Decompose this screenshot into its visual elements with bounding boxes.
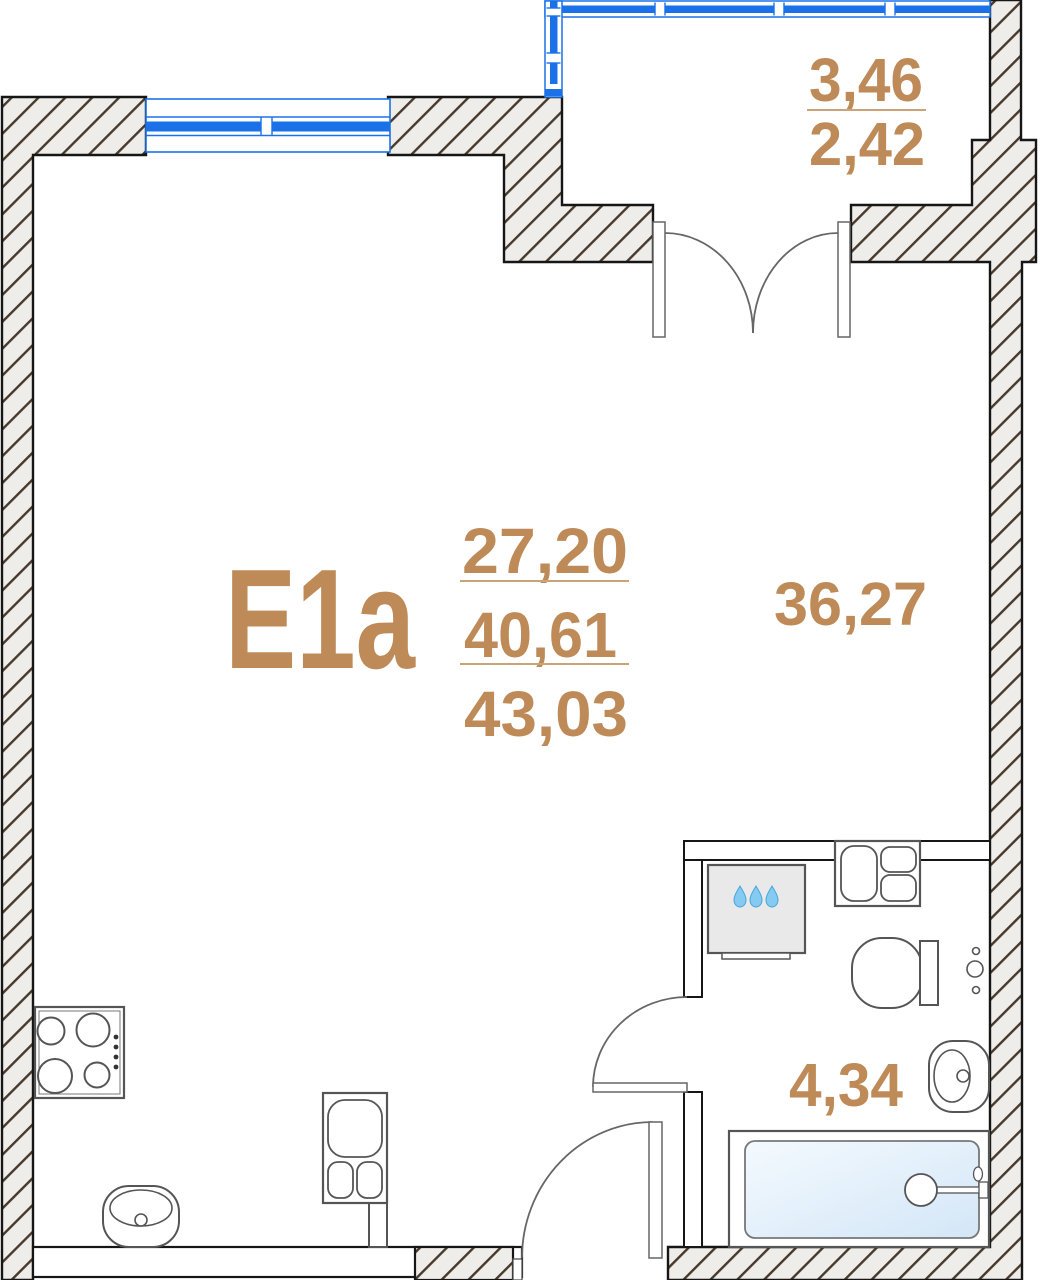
bathroom-wall-west-lower xyxy=(684,1092,702,1247)
sink-bowl-small xyxy=(357,1162,382,1198)
door-jamb-left xyxy=(653,222,665,337)
door-leaf xyxy=(649,1122,662,1258)
bathroom-wall-west-upper xyxy=(684,860,702,997)
knob xyxy=(114,1055,119,1060)
bathroom-area: 4,34 xyxy=(789,1051,903,1119)
door-swing-arc-right xyxy=(753,233,838,333)
main-window xyxy=(146,99,390,152)
floor-plan-canvas: E1a 27,20 40,61 43,03 36,27 3,46 2,42 4,… xyxy=(0,0,1041,1280)
burner xyxy=(85,1063,110,1088)
balcony-french-door xyxy=(653,222,850,337)
main-room-area: 36,27 xyxy=(774,570,927,638)
wash-basin xyxy=(929,1041,989,1112)
door-jamb-right xyxy=(838,222,850,337)
area-living: 27,20 xyxy=(462,515,628,587)
balcony-window-left xyxy=(545,1,562,97)
knob xyxy=(114,1045,119,1050)
water-drop-icon xyxy=(734,886,778,907)
balcony-area-upper: 3,46 xyxy=(809,46,923,114)
burner xyxy=(38,1059,72,1093)
vessel-sink xyxy=(103,1186,179,1247)
knob xyxy=(114,1035,119,1040)
bathtub xyxy=(729,1131,989,1247)
burner xyxy=(77,1014,110,1047)
door-leaf xyxy=(593,1083,687,1092)
floor-plan: E1a 27,20 40,61 43,03 36,27 3,46 2,42 4,… xyxy=(0,0,1041,1280)
bottom-wall xyxy=(33,1247,522,1280)
stove xyxy=(35,1007,124,1098)
wall-top-step xyxy=(388,97,653,262)
door-swing-arc xyxy=(522,1122,653,1258)
bowl-small xyxy=(881,875,916,901)
entrance-door-jamb xyxy=(513,1259,522,1280)
bottom-wall-hatched-segment xyxy=(415,1247,513,1280)
sink-bowl-small xyxy=(328,1162,353,1198)
wall-left xyxy=(2,97,146,1280)
bowl-large xyxy=(841,846,877,901)
kitchen-sink-unit xyxy=(323,1093,387,1247)
washing-machine-spot xyxy=(708,865,805,959)
knob xyxy=(114,1065,119,1070)
area-total: 40,61 xyxy=(464,599,617,671)
door-swing-arc-left xyxy=(665,233,753,333)
toilet xyxy=(852,938,938,1008)
burner xyxy=(38,1018,65,1045)
balcony-area-lower: 2,42 xyxy=(809,110,925,178)
toilet-tank xyxy=(920,941,938,1005)
bowl-small xyxy=(881,847,916,872)
entrance-door xyxy=(522,1122,662,1258)
toilet-bowl xyxy=(852,938,922,1008)
unit-label: E1a xyxy=(225,540,416,699)
area-overall: 43,03 xyxy=(464,678,628,750)
wall-accessories xyxy=(967,948,983,994)
bathroom-sink-cabinet xyxy=(835,841,920,906)
door-swing-arc xyxy=(593,997,687,1087)
bathroom-door xyxy=(593,997,687,1092)
balcony-window-top xyxy=(545,1,990,17)
sink-bowl-large xyxy=(328,1100,382,1157)
